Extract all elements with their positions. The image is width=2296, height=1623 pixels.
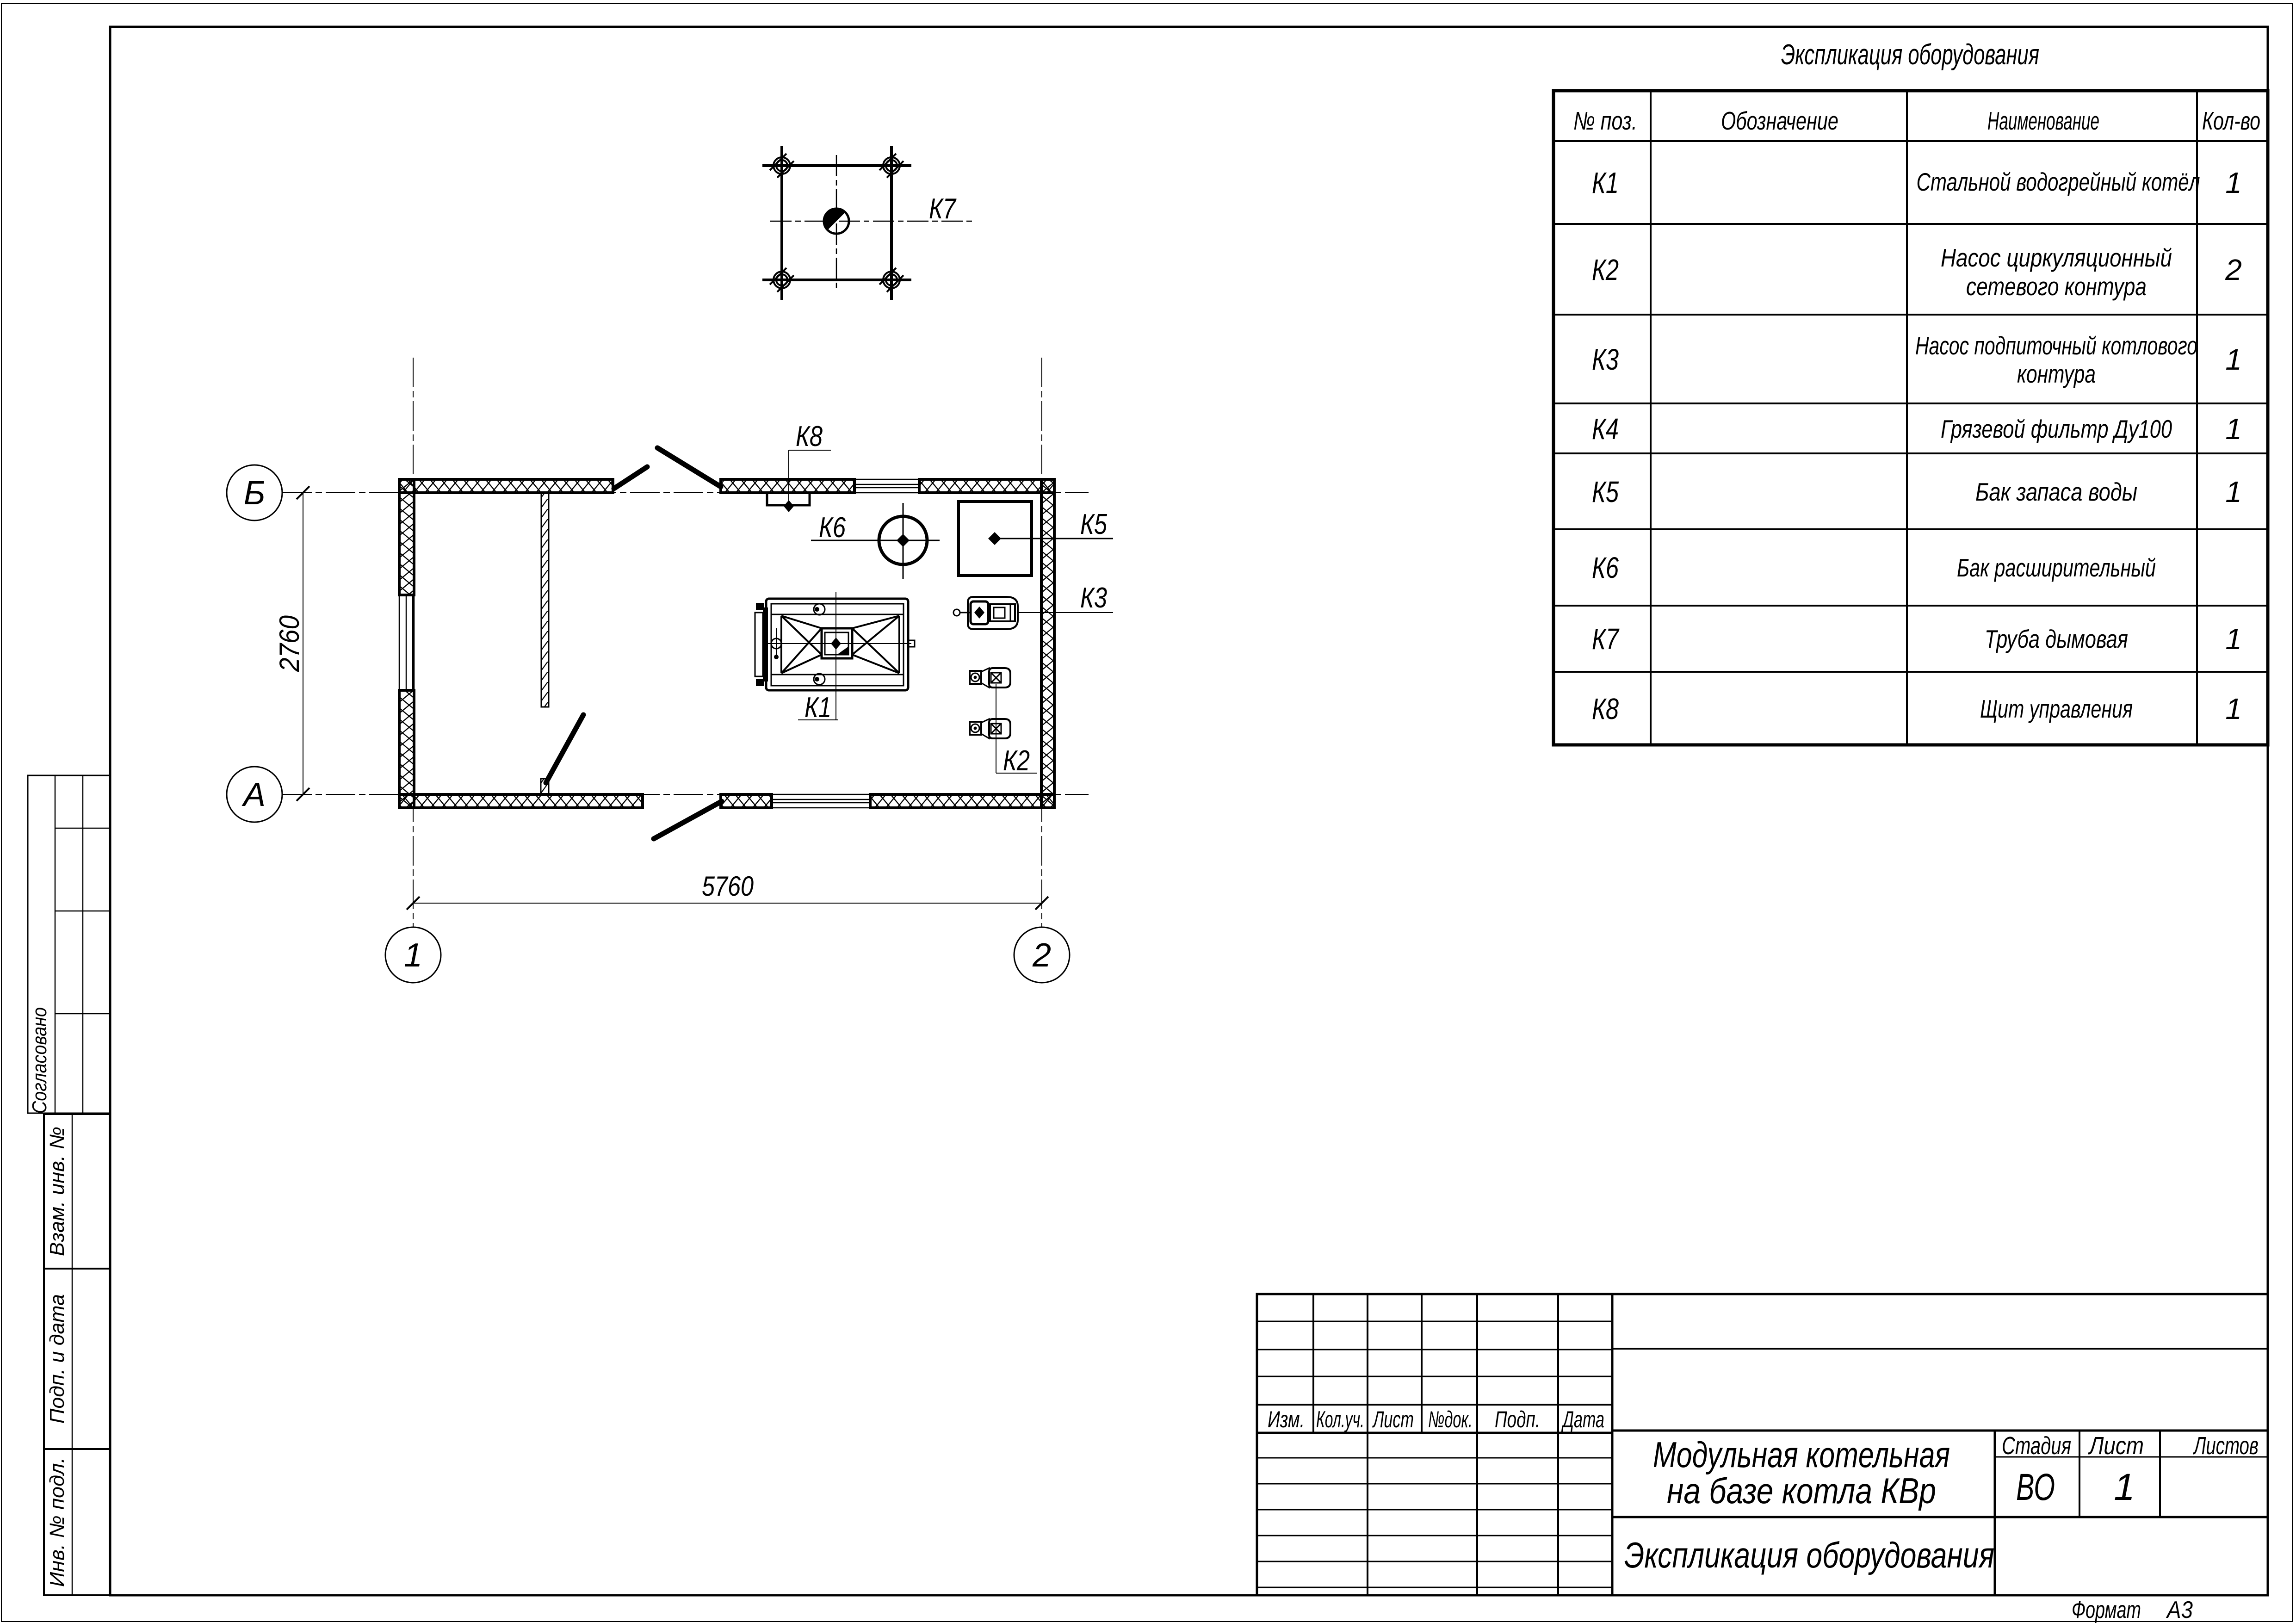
svg-text:К7: К7 <box>929 193 957 225</box>
svg-text:К1: К1 <box>1592 166 1619 199</box>
svg-text:К7: К7 <box>1592 622 1620 656</box>
svg-text:1: 1 <box>2114 1466 2135 1508</box>
svg-text:Труба дымовая: Труба дымовая <box>1985 625 2128 653</box>
svg-text:Наименование: Наименование <box>1987 106 2099 135</box>
svg-text:Насос подпиточный котлового: Насос подпиточный котлового <box>1915 331 2197 360</box>
svg-text:Изм.: Изм. <box>1268 1406 1305 1432</box>
svg-text:Обозначение: Обозначение <box>1721 106 1838 135</box>
svg-text:К2: К2 <box>1003 745 1030 777</box>
svg-text:Щит управления: Щит управления <box>1980 694 2133 723</box>
svg-text:1: 1 <box>2225 412 2242 446</box>
svg-text:1: 1 <box>2225 475 2242 508</box>
svg-text:2: 2 <box>2225 253 2242 286</box>
svg-text:1: 1 <box>2225 622 2242 656</box>
svg-text:К5: К5 <box>1080 508 1107 540</box>
svg-text:Взам. инв. №: Взам. инв. № <box>46 1127 68 1256</box>
svg-text:Подп. и дата: Подп. и дата <box>46 1294 68 1424</box>
svg-text:К5: К5 <box>1592 475 1619 508</box>
svg-text:1: 1 <box>404 937 422 974</box>
svg-text:Экспликация оборудования: Экспликация оборудования <box>1624 1535 1994 1575</box>
svg-text:Формат: Формат <box>2072 1597 2141 1623</box>
svg-text:ВО: ВО <box>2016 1466 2055 1508</box>
svg-text:1: 1 <box>2225 166 2242 199</box>
svg-text:К3: К3 <box>1080 582 1107 614</box>
svg-text:1: 1 <box>2225 343 2242 376</box>
svg-text:Лист: Лист <box>1372 1406 1414 1432</box>
svg-text:Бак запаса воды: Бак запаса воды <box>1975 477 2137 506</box>
svg-text:2: 2 <box>1032 937 1051 974</box>
svg-text:Грязевой фильтр Ду100: Грязевой фильтр Ду100 <box>1941 415 2172 443</box>
svg-text:на базе котла КВр: на базе котла КВр <box>1667 1470 1936 1511</box>
svg-text:А3: А3 <box>2166 1597 2193 1623</box>
svg-text:К8: К8 <box>796 421 823 452</box>
svg-text:контура: контура <box>2017 359 2096 388</box>
svg-text:1: 1 <box>2225 692 2242 725</box>
svg-text:Дата: Дата <box>1561 1406 1604 1432</box>
svg-text:К1: К1 <box>805 692 831 724</box>
svg-text:№ поз.: № поз. <box>1573 106 1637 135</box>
svg-text:№док.: №док. <box>1428 1406 1473 1432</box>
svg-text:Модульная котельная: Модульная котельная <box>1653 1434 1950 1475</box>
svg-text:К6: К6 <box>819 512 846 544</box>
svg-text:Стальной водогрейный котёл: Стальной водогрейный котёл <box>1917 167 2200 196</box>
svg-text:Подп.: Подп. <box>1495 1406 1540 1432</box>
svg-text:К4: К4 <box>1592 412 1619 446</box>
svg-text:5760: 5760 <box>702 871 754 902</box>
svg-text:Экспликация оборудования: Экспликация оборудования <box>1781 39 2039 71</box>
svg-text:К8: К8 <box>1592 692 1619 725</box>
svg-text:Листов: Листов <box>2193 1432 2259 1460</box>
svg-text:Б: Б <box>244 475 266 512</box>
svg-text:2760: 2760 <box>274 615 305 672</box>
svg-text:Лист: Лист <box>2088 1432 2144 1460</box>
svg-text:Насос циркуляционный: Насос циркуляционный <box>1941 243 2172 272</box>
svg-text:Кол.уч.: Кол.уч. <box>1316 1406 1364 1432</box>
svg-text:Бак расширительный: Бак расширительный <box>1957 553 2156 582</box>
svg-text:К2: К2 <box>1592 253 1619 286</box>
svg-text:А: А <box>241 776 266 813</box>
svg-text:Кол-во: Кол-во <box>2202 106 2260 135</box>
svg-text:Согласовано: Согласовано <box>28 1007 51 1114</box>
svg-text:К3: К3 <box>1592 343 1619 376</box>
svg-text:сетевого контура: сетевого контура <box>1966 272 2147 301</box>
svg-text:Инв. № подл.: Инв. № подл. <box>46 1457 68 1587</box>
svg-text:Стадия: Стадия <box>2002 1432 2071 1460</box>
svg-text:К6: К6 <box>1592 551 1619 584</box>
